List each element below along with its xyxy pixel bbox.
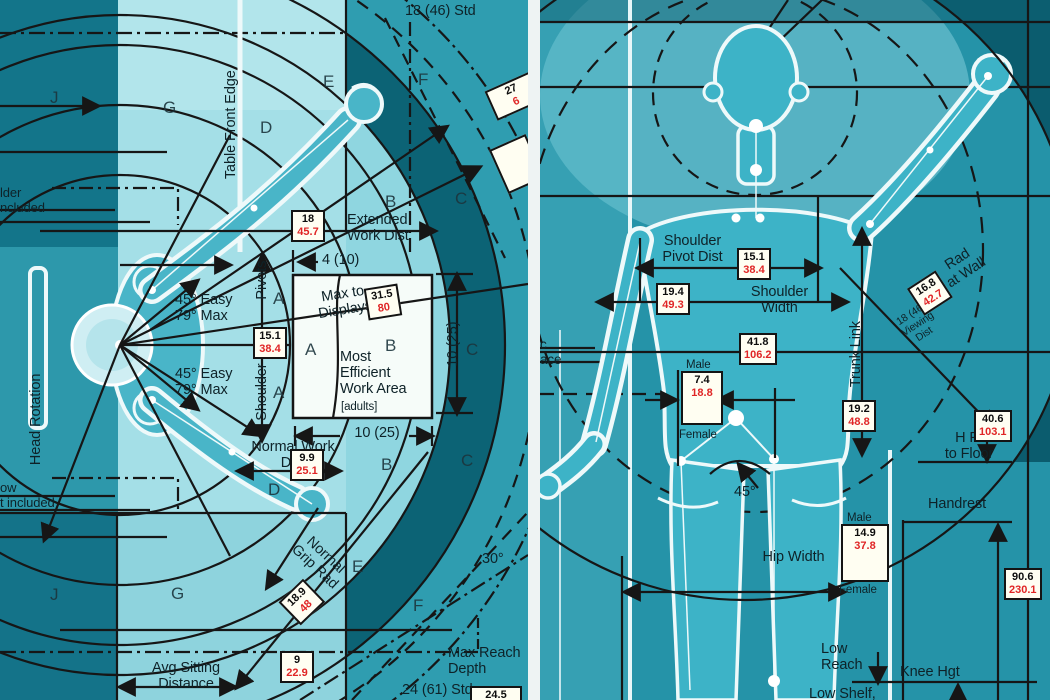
dim-10-25-horizontal-label: 10 (25) — [341, 425, 413, 441]
max-reach-depth-label: Max Reach Depth — [448, 645, 528, 677]
adults-label: [adults] — [341, 401, 421, 414]
measure-box-trunk-link: 19.2 48.8 — [842, 400, 876, 432]
zone-label-b: B — [385, 192, 396, 212]
measure-box-stature: 90.6 230.1 — [1004, 568, 1042, 600]
low-shelf-label: Low Shelf, — [809, 686, 904, 700]
measure-box-extended-work: 18 45.7 — [291, 210, 325, 242]
partial-label-lower: ow t included — [0, 481, 55, 510]
value-cm: 22.9 — [285, 667, 309, 680]
table-front-edge-label: Table Front Edge — [223, 9, 239, 179]
measure-box-h-pt: 40.6 103.1 — [974, 410, 1012, 442]
zone-label-d: D — [268, 480, 280, 500]
extended-work-dist-label: Extended Work Dist — [347, 212, 431, 244]
value-cm: 230.1 — [1009, 584, 1037, 597]
measure-box-max-displays: 31.5 80 — [364, 284, 403, 321]
value-in: 15.1 — [742, 251, 766, 264]
zone-label-f: F — [418, 70, 428, 90]
value-in: 41.8 — [744, 336, 772, 349]
dim-10-25-vertical-label: 10 (25) — [445, 305, 461, 383]
zone-label-j: J — [50, 88, 59, 108]
measure-box-body-breadth: 41.8 106.2 — [739, 333, 777, 365]
value-in: 9 — [285, 654, 309, 667]
zone-label-g: G — [163, 98, 176, 118]
box-spacer — [846, 553, 884, 579]
value-cm: 38.4 — [258, 343, 282, 356]
value-cm: 103.1 — [979, 426, 1007, 439]
low-reach-label: Low Reach — [821, 641, 881, 673]
measure-box-shoulder-pivot-dist: 15.1 38.4 — [737, 248, 771, 280]
value-in: 15.1 — [258, 330, 282, 343]
value-cm: 49.3 — [661, 299, 685, 312]
shoulder-width-label: Shoulder Width — [722, 284, 837, 316]
box-spacer — [686, 400, 718, 422]
zone-label-d: D — [260, 118, 272, 138]
female-waist-label: Female — [679, 429, 717, 442]
value-in: 40.6 — [979, 413, 1007, 426]
zone-label-c: C — [455, 189, 467, 209]
value-in: 18 — [296, 213, 320, 226]
zone-label-j: J — [50, 585, 59, 605]
most-efficient-work-area-label: Most Efficient Work Area — [340, 349, 440, 398]
measure-box-waist: 7.4 18.8 — [681, 371, 723, 425]
zone-label-g: G — [171, 584, 184, 604]
value-in: 19.2 — [847, 403, 871, 416]
value-in: 90.6 — [1009, 571, 1037, 584]
hip-width-label: Hip Width — [736, 549, 851, 565]
left-panel-seated-top-view: 18 (46) Std Table Front Edge Head Rotati… — [0, 0, 528, 700]
value-cm: 48.8 — [847, 416, 871, 429]
value-cm: 37.8 — [846, 540, 884, 553]
zone-label-e: E — [352, 557, 363, 577]
measure-box-shoulder-width: 19.4 49.3 — [656, 283, 690, 315]
value-in: 14.9 — [846, 527, 884, 540]
value-in: 7.4 — [686, 374, 718, 387]
avg-sitting-distance-label: Avg Sitting Distance — [134, 660, 238, 692]
shoulder-pivot-dist-label: Shoulder Pivot Dist — [640, 233, 745, 265]
zone-label-e: E — [323, 72, 334, 92]
value-cm: 25.1 — [295, 465, 319, 478]
dim-4-10-label: 4 (10) — [322, 252, 382, 268]
knee-hgt-label: Knee Hgt — [900, 664, 985, 680]
value-in: 24.5 — [475, 689, 517, 700]
zone-label-a: A — [305, 340, 316, 360]
handrest-label: Handrest — [928, 496, 1010, 512]
measure-box-hip-width: 14.9 37.8 — [841, 524, 889, 582]
trunk-link-label: Trunk Link — [848, 308, 864, 400]
value-in: 19.4 — [661, 286, 685, 299]
zone-label-c: C — [461, 451, 473, 471]
value-cm: 18.8 — [686, 387, 718, 400]
value-cm: 106.2 — [744, 349, 772, 362]
head-rotation-label: Head Rotation — [28, 313, 44, 465]
value-in: 9.9 — [295, 452, 319, 465]
right-panel-drawing — [540, 0, 1050, 700]
value-cm: 38.4 — [742, 264, 766, 277]
pivots-label: Pivots — [254, 242, 270, 318]
zone-label-a: A — [273, 289, 284, 309]
measure-box-shoulder-pivot: 15.1 38.4 — [253, 327, 287, 359]
zone-label-b: B — [381, 455, 392, 475]
measure-box-normal-work: 9.9 25.1 — [290, 449, 324, 481]
deg-30-label: 30° — [482, 551, 504, 567]
zone-label-f: F — [413, 596, 423, 616]
value-cm: 45.7 — [296, 226, 320, 239]
zone-label-a: A — [273, 383, 284, 403]
measure-box-reach-std: 24.5 — [470, 686, 522, 700]
ergonomics-diagram: 18 (46) Std Table Front Edge Head Rotati… — [0, 0, 1050, 700]
right-panel-standing-rear-view: Shoulder Pivot Dist Shoulder Width Trunk… — [540, 0, 1050, 700]
zone-label-c: C — [466, 340, 478, 360]
partial-label-left: c ace — [540, 337, 561, 367]
zone-label-b: B — [385, 336, 396, 356]
male-hip-label: Male — [847, 512, 872, 525]
measure-box-sitting: 9 22.9 — [280, 651, 314, 683]
partial-label-upper: lder ncluded — [0, 186, 45, 215]
std-top-label: 18 (46) Std — [405, 3, 520, 19]
female-hip-label: Female — [839, 584, 877, 597]
deg-45-label: 45° — [734, 484, 756, 500]
male-waist-label: Male — [686, 359, 711, 372]
